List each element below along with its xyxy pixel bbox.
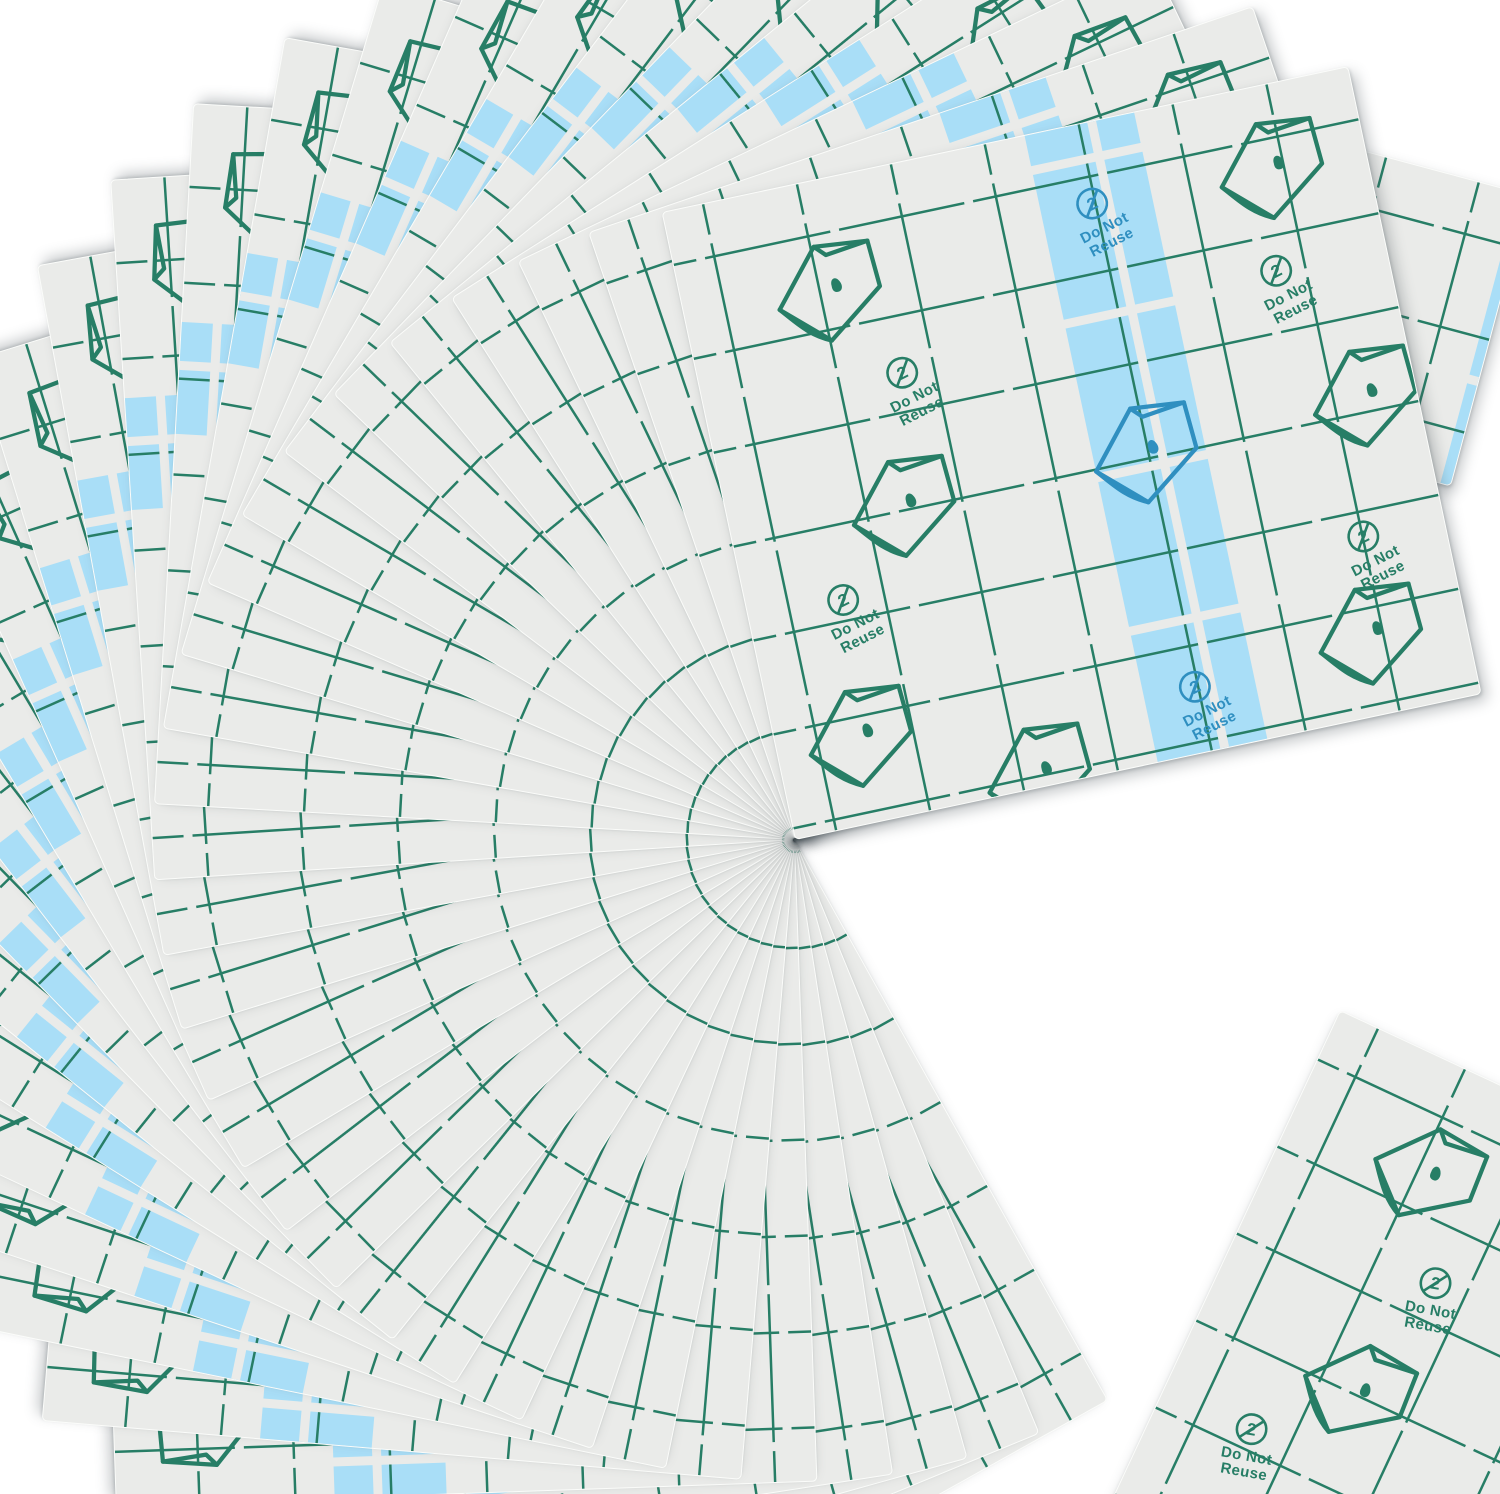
peel-film-icon-wrap bbox=[1364, 1120, 1494, 1233]
no-reuse-symbol-icon: 2 bbox=[1413, 1261, 1457, 1305]
bottom-right-sheet: 2Do NotReuse2Do NotReuse2Do NotReuse2Do … bbox=[1069, 1010, 1500, 1494]
scene: 2Do NotReuse2Do NotReuse2Do NotReuse2Do … bbox=[0, 0, 1500, 1494]
peel-film-icon bbox=[1294, 1336, 1424, 1444]
peel-film-icon bbox=[1364, 1120, 1494, 1228]
grid-print bbox=[1070, 1011, 1500, 1494]
peel-film-icon-wrap bbox=[1294, 1336, 1424, 1449]
no-reuse-symbol-icon: 2 bbox=[1229, 1407, 1273, 1451]
